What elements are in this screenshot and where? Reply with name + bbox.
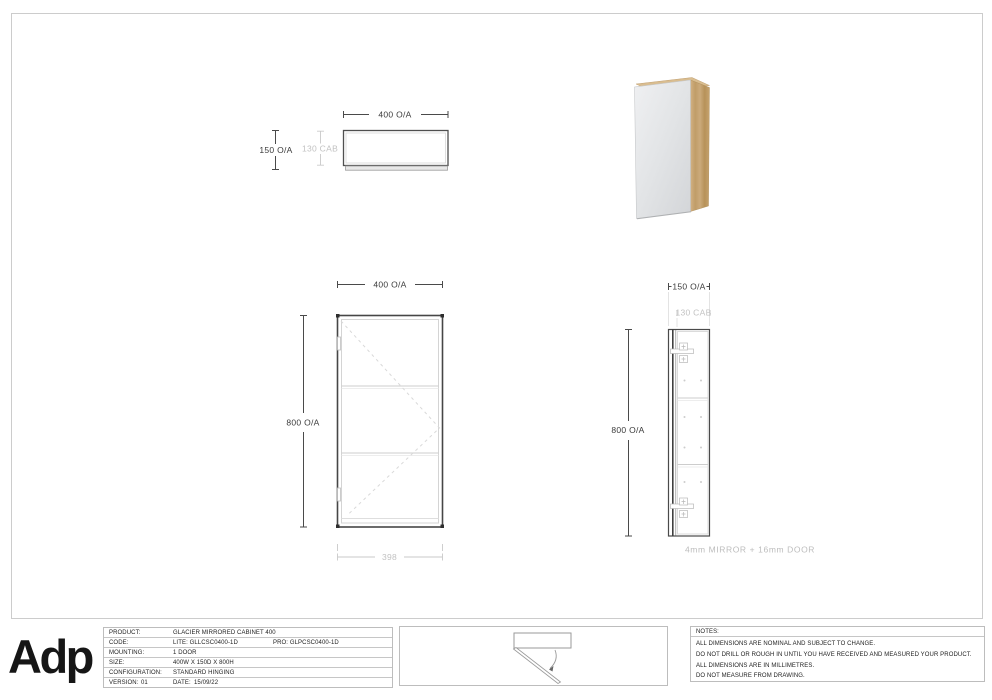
table-row-configuration: CONFIGURATION: STANDARD HINGING [104, 667, 392, 677]
side-view-depth-dim: 150 O/A [672, 282, 705, 292]
row-value-2: PRO: GLPCSC0400-1D [273, 640, 339, 646]
notes-heading: NOTES: [691, 627, 984, 637]
render-mirror-face [635, 80, 691, 219]
hinge-mark-top [338, 337, 341, 350]
drawing-canvas: 400 O/A 150 O/A 130 CAB 400 O/A [0, 0, 992, 620]
adp-logo: Adp [8, 629, 100, 687]
note-line: ALL DIMENSIONS ARE NOMINAL AND SUBJECT T… [696, 639, 984, 650]
swing-cabinet-plan [514, 633, 571, 648]
front-view-width-dim: 400 O/A [373, 280, 406, 290]
top-view-cabinet-outline [344, 131, 449, 166]
row-value: 1 DOOR [173, 650, 197, 656]
front-view-height-dim: 800 O/A [286, 418, 319, 428]
drawing-sheet: 400 O/A 150 O/A 130 CAB 400 O/A [0, 0, 992, 700]
top-view-depth-dim: 150 O/A [259, 145, 292, 155]
render-side-face [691, 80, 710, 212]
swing-open-door [514, 648, 561, 684]
table-row-product: PRODUCT: GLACIER MIRRORED CABINET 400 [104, 628, 392, 637]
front-view: 400 O/A 800 O/A 398 [286, 280, 444, 563]
construction-note: 4mm MIRROR + 16mm DOOR [685, 545, 815, 555]
row-label: VERSION: [109, 680, 138, 686]
row-value-2: 15/09/22 [194, 680, 218, 686]
row-label: PRODUCT: [109, 630, 140, 636]
row-label: CODE: [109, 640, 129, 646]
row-value: GLACIER MIRRORED CABINET 400 [173, 630, 276, 636]
row-label: CONFIGURATION: [109, 670, 162, 676]
side-view-cab-dim: 130 CAB [675, 308, 711, 318]
side-view-height-dim: 800 O/A [611, 425, 644, 435]
row-value: LITE: GLLCSC0400-1D [173, 640, 238, 646]
side-view: 150 O/A 130 CAB [611, 282, 815, 555]
table-row-code: CODE: LITE: GLLCSC0400-1D PRO: GLPCSC040… [104, 637, 392, 647]
product-spec-table: PRODUCT: GLACIER MIRRORED CABINET 400 CO… [103, 627, 393, 688]
row-label-2: DATE: [173, 680, 191, 686]
top-view-width-dim: 400 O/A [378, 110, 411, 120]
table-row-version: VERSION: 01 DATE: 15/09/22 [104, 677, 392, 687]
table-row-mounting: MOUNTING: 1 DOOR [104, 647, 392, 657]
cabinet-3d-render [635, 78, 710, 219]
notes-box: NOTES: ALL DIMENSIONS ARE NOMINAL AND SU… [690, 626, 985, 682]
front-view-cabinet-outline [338, 316, 443, 528]
row-value: 400W X 150D X 800H [173, 660, 234, 666]
row-value: 01 [141, 680, 148, 686]
front-view-cutout-dim: 398 [382, 552, 397, 562]
swing-arc [550, 650, 556, 669]
row-label: MOUNTING: [109, 650, 144, 656]
row-label: SIZE: [109, 660, 125, 666]
door-swing-diagram [399, 626, 668, 686]
row-value: STANDARD HINGING [173, 670, 235, 676]
note-line: ALL DIMENSIONS ARE IN MILLIMETRES. [696, 661, 984, 672]
table-row-size: SIZE: 400W X 150D X 800H [104, 657, 392, 667]
note-line: DO NOT DRILL OR ROUGH IN UNTIL YOU HAVE … [696, 650, 984, 661]
top-view-door-strip [346, 166, 448, 170]
top-view: 400 O/A 150 O/A 130 CAB [259, 110, 448, 171]
hinge-mark-bottom [338, 488, 341, 501]
top-view-cab-dim: 130 CAB [302, 144, 338, 154]
note-line: DO NOT MEASURE FROM DRAWING. [696, 671, 984, 682]
